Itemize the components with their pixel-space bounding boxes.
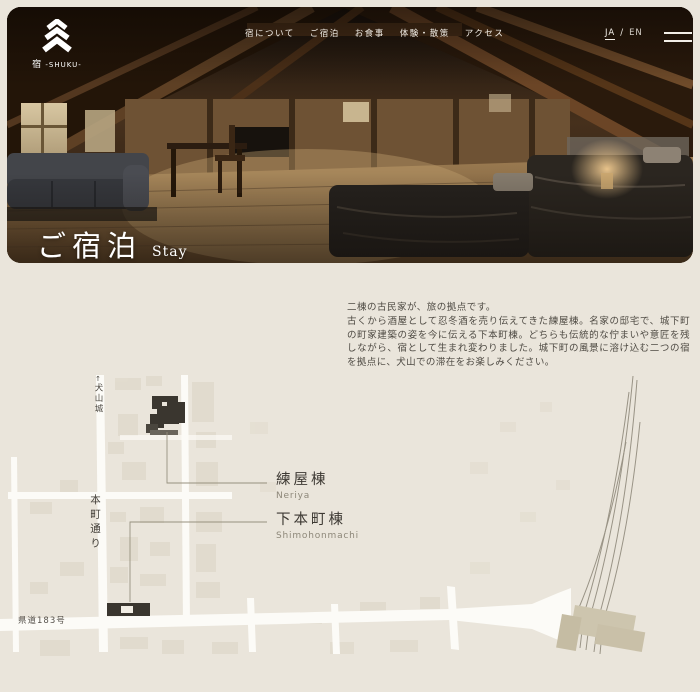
- area-map: ↑犬山城 本町通り 県道183号 練屋棟 Neriya 下本町棟 Shimoho…: [0, 362, 700, 692]
- main-nav: 宿について ご宿泊 お食事 体験・散策 アクセス: [245, 27, 504, 39]
- brand-chevrons-icon: [40, 19, 74, 53]
- intro-lead: 二棟の古民家が、旅の拠点です。: [347, 301, 690, 315]
- label-shimohonmachi-jp: 下本町棟: [276, 508, 359, 529]
- label-shimohonmachi: 下本町棟 Shimohonmachi: [276, 508, 359, 541]
- brand-wordmark: 宿 -SHUKU-: [27, 57, 87, 70]
- road-kendo183: [0, 588, 571, 646]
- brand-logo[interactable]: 宿 -SHUKU-: [27, 19, 87, 70]
- hero-section: 宿 -SHUKU- 宿について ご宿泊 お食事 体験・散策 アクセス JA / …: [7, 7, 693, 263]
- site-header: 宿 -SHUKU- 宿について ご宿泊 お食事 体験・散策 アクセス JA / …: [7, 7, 693, 81]
- label-neriya-jp: 練屋棟: [276, 468, 329, 489]
- page-title: ご宿泊 Stay: [37, 223, 188, 263]
- marker-neriya-building: [146, 396, 185, 435]
- brand-jp: 宿: [32, 60, 42, 70]
- intro-text: 二棟の古民家が、旅の拠点です。 古くから酒屋として忍冬酒を売り伝えてきた練屋棟。…: [347, 301, 690, 369]
- label-inuyama-castle: ↑犬山城: [92, 375, 104, 415]
- label-route-183: 県道183号: [18, 614, 66, 626]
- marker-shimohonmachi-building: [107, 603, 150, 616]
- label-neriya: 練屋棟 Neriya: [276, 468, 329, 501]
- language-switcher: JA / EN: [605, 28, 643, 40]
- lang-ja[interactable]: JA: [605, 28, 615, 40]
- nav-about[interactable]: 宿について: [245, 27, 295, 39]
- label-shimohonmachi-en: Shimohonmachi: [276, 531, 359, 541]
- page-title-jp: ご宿泊: [37, 223, 142, 263]
- page-title-en: Stay: [152, 244, 187, 260]
- nav-experience[interactable]: 体験・散策: [400, 27, 450, 39]
- brand-roman: -SHUKU-: [45, 61, 81, 69]
- label-neriya-en: Neriya: [276, 491, 329, 501]
- label-honmachi-street: 本町通り: [88, 494, 103, 552]
- menu-icon[interactable]: [664, 32, 692, 44]
- lang-en[interactable]: EN: [629, 28, 643, 40]
- nav-dining[interactable]: お食事: [355, 27, 385, 39]
- nav-access[interactable]: アクセス: [465, 27, 505, 39]
- nav-stay[interactable]: ご宿泊: [310, 27, 340, 39]
- lang-separator: /: [620, 28, 624, 40]
- up-arrow-icon: ↑: [94, 375, 102, 383]
